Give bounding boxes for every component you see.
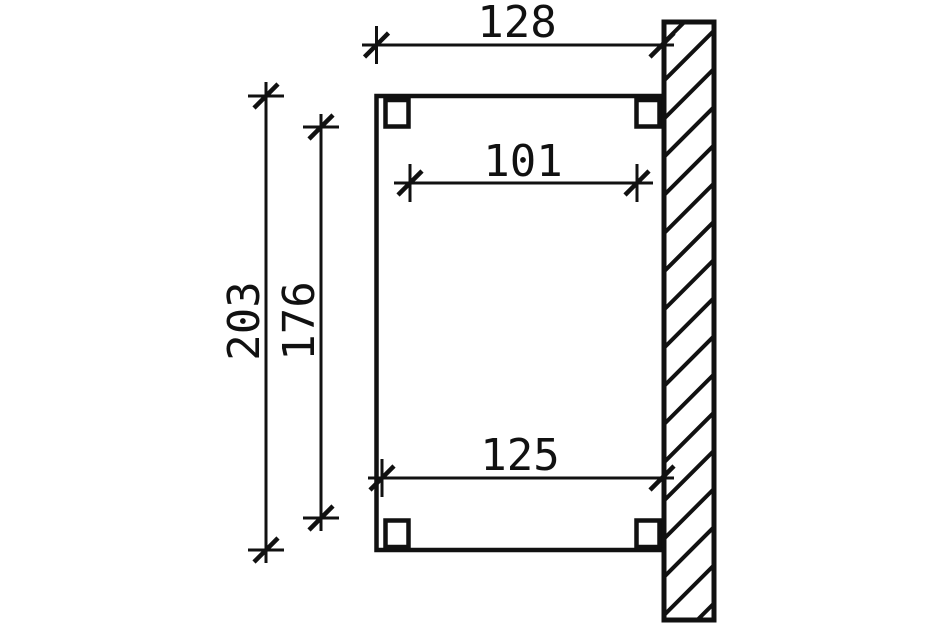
dimension-value-inner-height: 176 [274, 281, 325, 360]
dimension-value-lower-width: 125 [480, 430, 559, 481]
wall [664, 22, 714, 620]
post-top-left [386, 100, 409, 127]
technical-drawing-canvas: 128 101 203 176 125 [0, 0, 940, 628]
post-top-right [637, 100, 660, 127]
dimension-value-overall-width: 128 [477, 0, 556, 48]
post-bottom-left [386, 521, 409, 548]
post-bottom-right [637, 521, 660, 548]
dimension-value-inner-width: 101 [483, 136, 562, 187]
dimension-value-overall-height: 203 [219, 281, 270, 360]
wall-hatched-section [664, 22, 714, 620]
canopy-dimension-drawing: 128 101 203 176 125 [0, 0, 940, 628]
